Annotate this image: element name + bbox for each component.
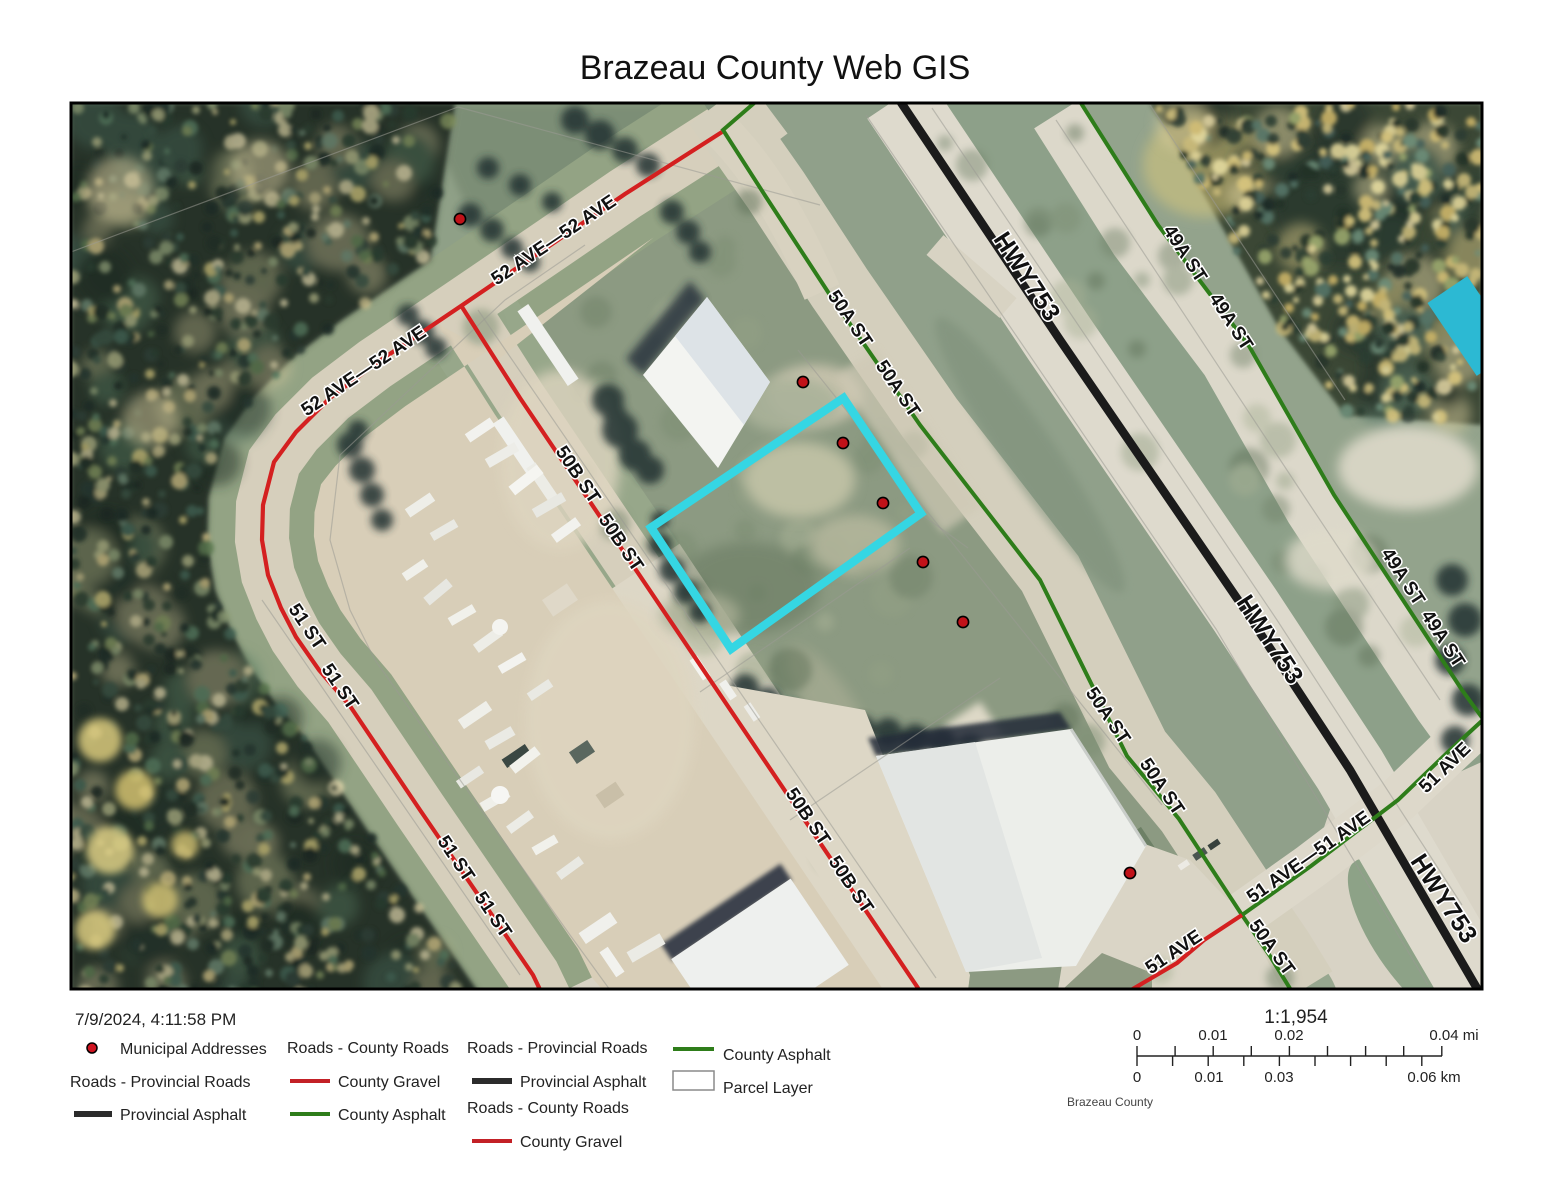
- svg-text:0: 0: [1133, 1069, 1141, 1086]
- svg-text:Brazeau County: Brazeau County: [1067, 1095, 1153, 1109]
- svg-text:0.02: 0.02: [1274, 1027, 1303, 1044]
- svg-text:Roads - Provincial Roads: Roads - Provincial Roads: [70, 1074, 251, 1091]
- svg-text:County Asphalt: County Asphalt: [723, 1047, 831, 1064]
- svg-text:0.01: 0.01: [1194, 1069, 1223, 1086]
- svg-text:0.04 mi: 0.04 mi: [1429, 1027, 1478, 1044]
- svg-text:County Gravel: County Gravel: [338, 1074, 440, 1091]
- svg-text:County Gravel: County Gravel: [520, 1134, 622, 1151]
- svg-text:1:1,954: 1:1,954: [1264, 1007, 1328, 1028]
- svg-text:0: 0: [1133, 1027, 1141, 1044]
- svg-text:Provincial Asphalt: Provincial Asphalt: [120, 1107, 247, 1124]
- svg-text:0.01: 0.01: [1198, 1027, 1227, 1044]
- svg-text:0.03: 0.03: [1264, 1069, 1293, 1086]
- svg-text:0.06 km: 0.06 km: [1407, 1069, 1460, 1086]
- svg-text:Roads - County Roads: Roads - County Roads: [467, 1100, 629, 1117]
- svg-text:Parcel Layer: Parcel Layer: [723, 1080, 813, 1097]
- svg-text:County Asphalt: County Asphalt: [338, 1107, 446, 1124]
- svg-text:Roads - County Roads: Roads - County Roads: [287, 1040, 449, 1057]
- svg-text:Provincial Asphalt: Provincial Asphalt: [520, 1074, 647, 1091]
- svg-text:Municipal Addresses: Municipal Addresses: [120, 1041, 267, 1058]
- svg-text:7/9/2024, 4:11:58 PM: 7/9/2024, 4:11:58 PM: [75, 1010, 236, 1029]
- svg-text:Roads - Provincial Roads: Roads - Provincial Roads: [467, 1040, 648, 1057]
- svg-text:Brazeau County Web GIS: Brazeau County Web GIS: [580, 49, 971, 87]
